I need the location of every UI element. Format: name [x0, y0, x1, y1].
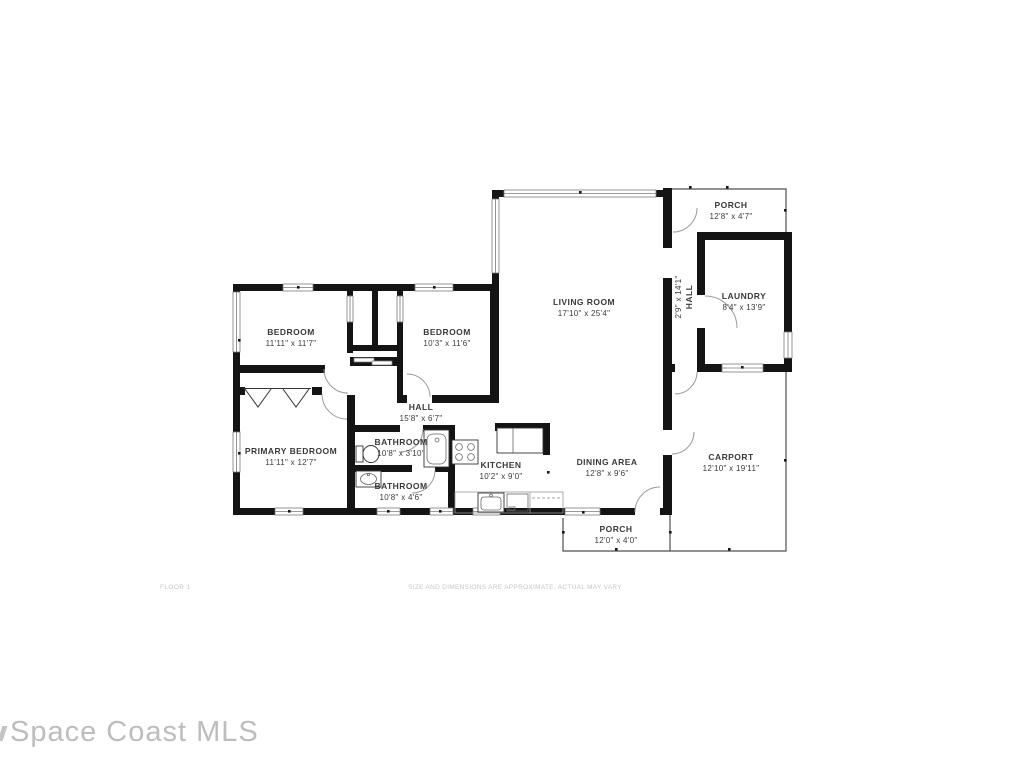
room-label-hall: HALL 15'8" x 6'7": [399, 402, 442, 424]
room-label-primary-bedroom: PRIMARY BEDROOM 11'11" x 12'7": [245, 446, 337, 468]
kitchen-sink-icon: [478, 493, 504, 512]
closet-sliding-door: [397, 296, 403, 322]
room-label-bedroom-2: BEDROOM 10'3" x 11'6": [423, 327, 471, 349]
room-label-porch-bottom: PORCH 12'0" x 4'0": [594, 524, 637, 546]
room-label-bathroom-1: BATHROOM 10'8" x 3'10": [374, 437, 427, 459]
closet-sliding-door: [347, 296, 353, 322]
room-label-porch-top: PORCH 12'8" x 4'7": [709, 200, 752, 222]
room-label-kitchen: KITCHEN 10'2" x 9'0": [479, 460, 522, 482]
room-label-carport: CARPORT 12'10" x 19'11": [703, 452, 760, 474]
window: [784, 332, 792, 358]
disclaimer-text: SIZE AND DIMENSIONS ARE APPROXIMATE, ACT…: [408, 584, 622, 591]
watermark-text: Space Coast MLS: [10, 716, 259, 749]
door-dining-to-carport: [672, 432, 694, 454]
room-label-laundry: LAUNDRY 8'4" x 13'9": [722, 291, 766, 313]
door-primary-bedroom: [322, 394, 347, 419]
room-label-bedroom-1: BEDROOM 11'11" x 11'7": [266, 327, 317, 349]
closet-bifold-doors: [243, 389, 311, 408]
bathtub-icon: [424, 430, 449, 467]
door-bedroom2: [407, 374, 430, 397]
window: [492, 199, 499, 273]
door-bedroom1: [324, 369, 348, 393]
refrigerator-icon: [497, 428, 543, 453]
room-label-living-room: LIVING ROOM 17'10" x 25'4": [553, 297, 615, 319]
door-gap: [635, 508, 660, 515]
room-label-bathroom-2: BATHROOM 10'8" x 4'6": [374, 481, 427, 503]
window: [233, 292, 240, 352]
floorplan-image: BEDROOM 11'11" x 11'7" BEDROOM 10'3" x 1…: [0, 0, 1024, 768]
room-label-dining-area: DINING AREA 12'8" x 9'6": [577, 457, 638, 479]
door-porch-to-hall: [673, 208, 697, 232]
floor-label: FLOOR 1: [160, 584, 191, 591]
stove-icon: [452, 440, 478, 464]
door-hall-to-carport: [675, 372, 697, 394]
floorplan-drawing: [0, 0, 1024, 768]
room-label-hall-vertical: 2'9" x 14'1" HALL: [673, 275, 695, 318]
